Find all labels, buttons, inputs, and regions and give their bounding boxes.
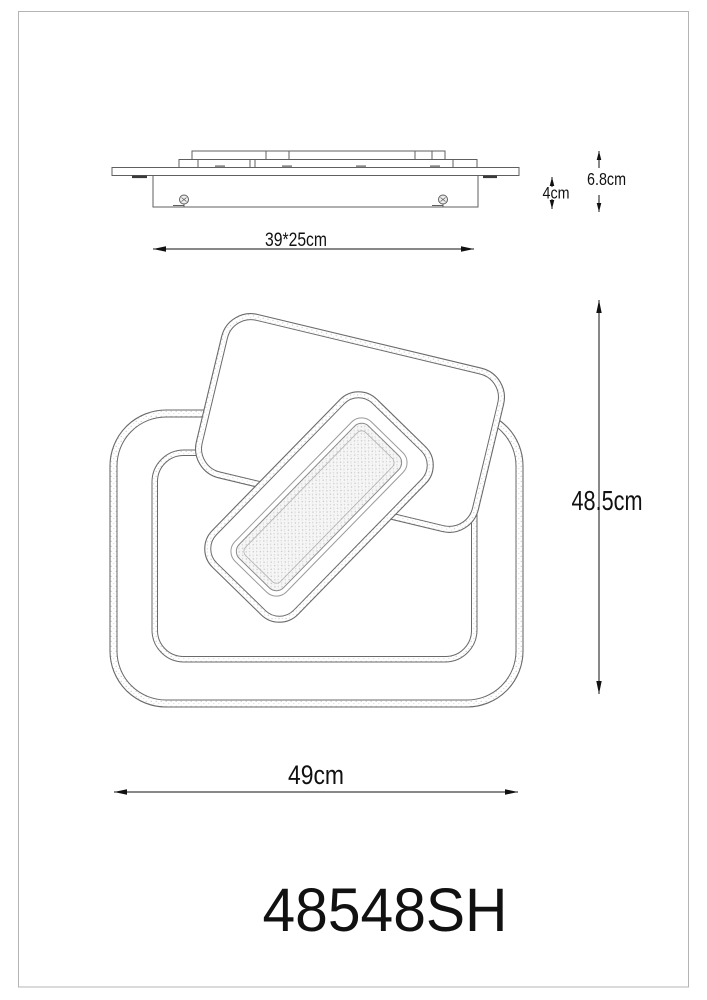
panel-layer-top [192, 151, 445, 160]
clip-left [132, 176, 147, 179]
dim-mounting-size-label: 39*25cm [265, 229, 327, 251]
technical-drawing-canvas: 39*25cm 4cm 6.8cm [0, 0, 707, 1000]
seam-mark-4 [430, 165, 440, 167]
seam-mark-2 [282, 165, 292, 167]
dim-height-label: 48.5cm [572, 485, 643, 516]
ceiling-plate [112, 168, 519, 176]
dim-bracket-height-label: 4cm [543, 184, 570, 203]
clip-right [483, 176, 497, 179]
dim-width-label: 49cm [288, 760, 344, 790]
side-view [112, 151, 519, 208]
mounting-bracket [153, 176, 478, 208]
model-number: 48548SH [263, 876, 508, 944]
drawing-page: 39*25cm 4cm 6.8cm [0, 0, 707, 1000]
dim-bracket-height: 4cm [543, 177, 570, 209]
front-view [110, 307, 523, 707]
dim-total-height-label: 6.8cm [587, 169, 626, 189]
dim-height: 48.5cm [572, 300, 643, 694]
dim-width: 49cm [114, 760, 518, 792]
dim-mounting-size: 39*25cm [153, 229, 474, 251]
seam-mark-3 [356, 165, 366, 167]
dim-total-height: 6.8cm [587, 151, 626, 212]
light-panel-layers [179, 151, 477, 168]
seam-mark-1 [215, 165, 225, 167]
